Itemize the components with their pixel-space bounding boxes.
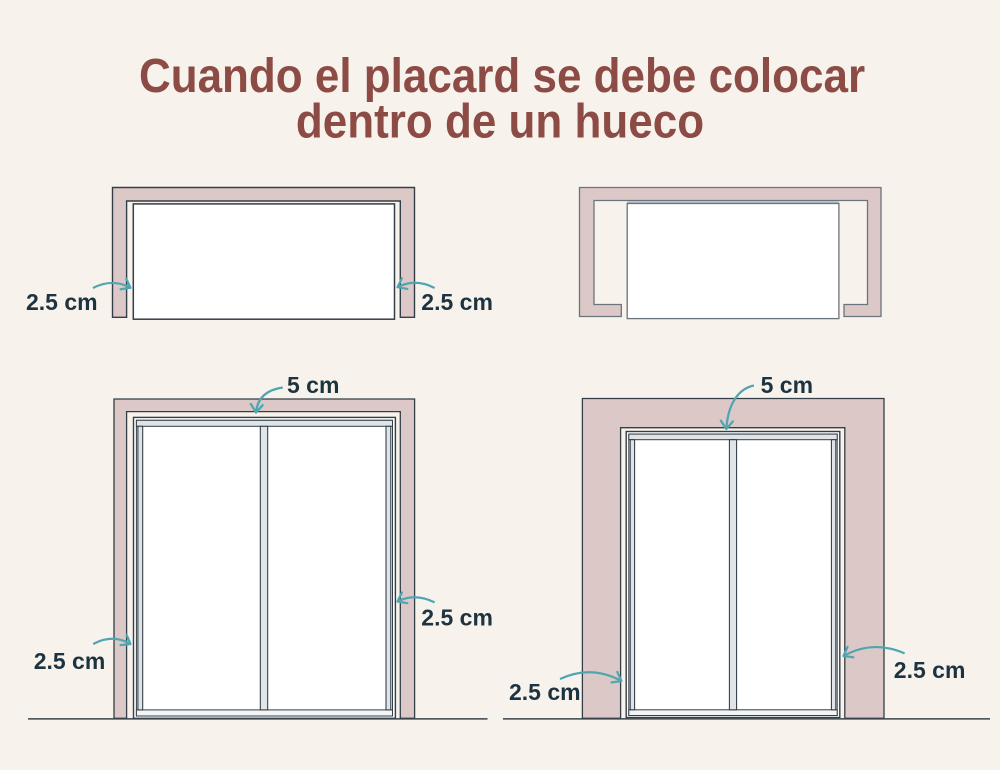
- svg-text:2.5 cm: 2.5 cm: [421, 289, 493, 315]
- svg-text:2.5 cm: 2.5 cm: [894, 657, 966, 683]
- svg-text:dentro de un hueco: dentro de un hueco: [296, 94, 704, 148]
- svg-text:2.5 cm: 2.5 cm: [421, 605, 493, 631]
- svg-text:2.5 cm: 2.5 cm: [34, 648, 106, 674]
- svg-text:5 cm: 5 cm: [761, 372, 813, 398]
- svg-text:2.5 cm: 2.5 cm: [509, 679, 581, 705]
- svg-text:5 cm: 5 cm: [287, 372, 339, 398]
- svg-text:2.5 cm: 2.5 cm: [26, 289, 98, 315]
